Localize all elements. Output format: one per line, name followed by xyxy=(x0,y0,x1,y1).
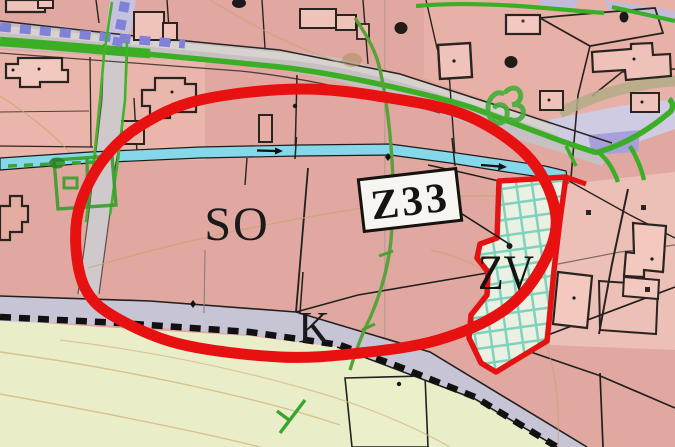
svg-text:K: K xyxy=(298,303,330,352)
svg-text:SO: SO xyxy=(204,198,269,251)
svg-text:Z33: Z33 xyxy=(368,175,452,230)
svg-text:ZV: ZV xyxy=(478,244,534,300)
